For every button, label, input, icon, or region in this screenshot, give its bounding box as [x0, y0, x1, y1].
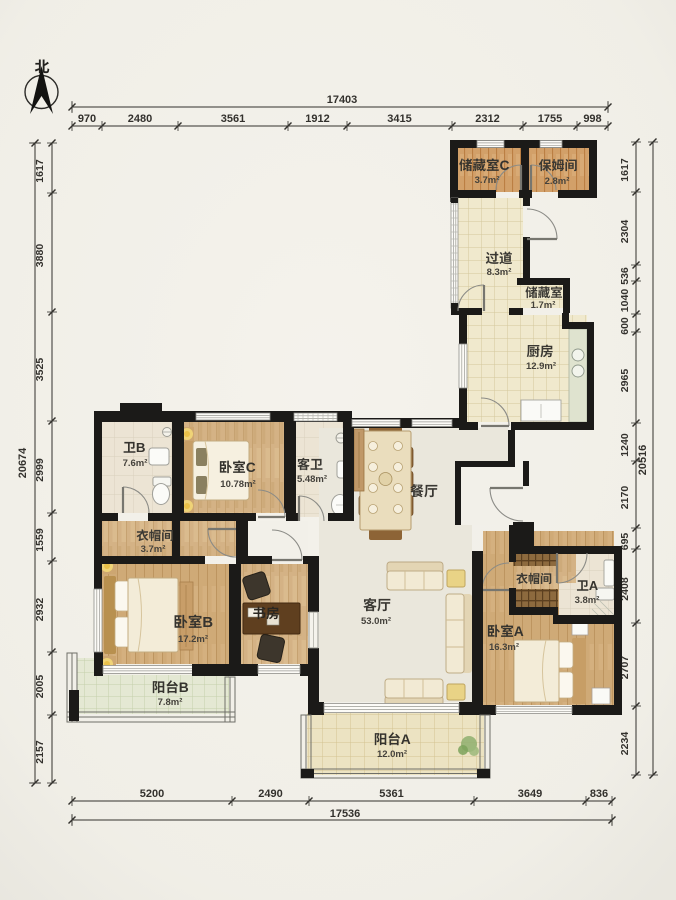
svg-text:20516: 20516	[637, 445, 649, 476]
svg-text:2304: 2304	[619, 220, 631, 244]
svg-text:8.3m²: 8.3m²	[487, 267, 512, 278]
svg-text:1617: 1617	[619, 158, 631, 182]
svg-text:2157: 2157	[34, 740, 46, 764]
svg-text:1240: 1240	[619, 433, 631, 457]
svg-text:3880: 3880	[34, 244, 46, 268]
svg-text:B: B	[202, 615, 213, 631]
svg-text:5.48m²: 5.48m²	[297, 474, 327, 485]
svg-text:970: 970	[78, 113, 96, 125]
svg-text:536: 536	[619, 267, 631, 285]
svg-text:1040: 1040	[619, 289, 631, 313]
svg-text:3525: 3525	[34, 358, 46, 382]
svg-text:2999: 2999	[34, 458, 46, 482]
svg-text:2490: 2490	[258, 788, 282, 800]
svg-text:5200: 5200	[140, 788, 164, 800]
svg-text:C: C	[246, 460, 256, 475]
svg-text:1559: 1559	[34, 528, 46, 552]
svg-text:3649: 3649	[518, 788, 542, 800]
svg-text:2234: 2234	[619, 732, 631, 756]
svg-text:3561: 3561	[221, 113, 245, 125]
svg-text:16.3m²: 16.3m²	[489, 642, 519, 653]
svg-text:1.7m²: 1.7m²	[531, 300, 556, 311]
svg-text:3.7m²: 3.7m²	[475, 175, 500, 186]
svg-text:12.0m²: 12.0m²	[377, 749, 407, 760]
svg-text:1912: 1912	[305, 113, 329, 125]
svg-text:2965: 2965	[619, 369, 631, 393]
svg-text:2170: 2170	[619, 486, 631, 510]
svg-text:2312: 2312	[475, 113, 499, 125]
svg-text:2932: 2932	[34, 598, 46, 622]
svg-text:998: 998	[583, 113, 601, 125]
svg-text:5361: 5361	[379, 788, 403, 800]
svg-text:B: B	[136, 440, 146, 455]
svg-text:3.8m²: 3.8m²	[575, 595, 600, 606]
svg-text:12.9m²: 12.9m²	[526, 361, 556, 372]
svg-text:53.0m²: 53.0m²	[361, 616, 391, 627]
svg-text:A: A	[589, 578, 598, 593]
svg-text:3.7m²: 3.7m²	[141, 544, 166, 555]
svg-text:17536: 17536	[330, 808, 361, 820]
svg-text:A: A	[401, 732, 411, 747]
svg-text:7.8m²: 7.8m²	[158, 697, 183, 708]
svg-text:836: 836	[590, 788, 608, 800]
svg-text:2.8m²: 2.8m²	[545, 176, 570, 187]
svg-text:20674: 20674	[17, 447, 29, 478]
svg-text:17403: 17403	[327, 94, 358, 106]
svg-text:10.78m²: 10.78m²	[220, 479, 255, 490]
svg-text:C: C	[500, 158, 510, 173]
svg-text:7.6m²: 7.6m²	[123, 458, 148, 469]
svg-text:2480: 2480	[128, 113, 152, 125]
svg-text:17.2m²: 17.2m²	[178, 634, 208, 645]
svg-text:1755: 1755	[538, 113, 562, 125]
svg-text:A: A	[514, 624, 524, 639]
svg-text:600: 600	[619, 317, 631, 335]
svg-text:B: B	[179, 680, 189, 695]
svg-text:3415: 3415	[387, 113, 411, 125]
svg-text:1617: 1617	[34, 159, 46, 183]
svg-text:2005: 2005	[34, 675, 46, 699]
